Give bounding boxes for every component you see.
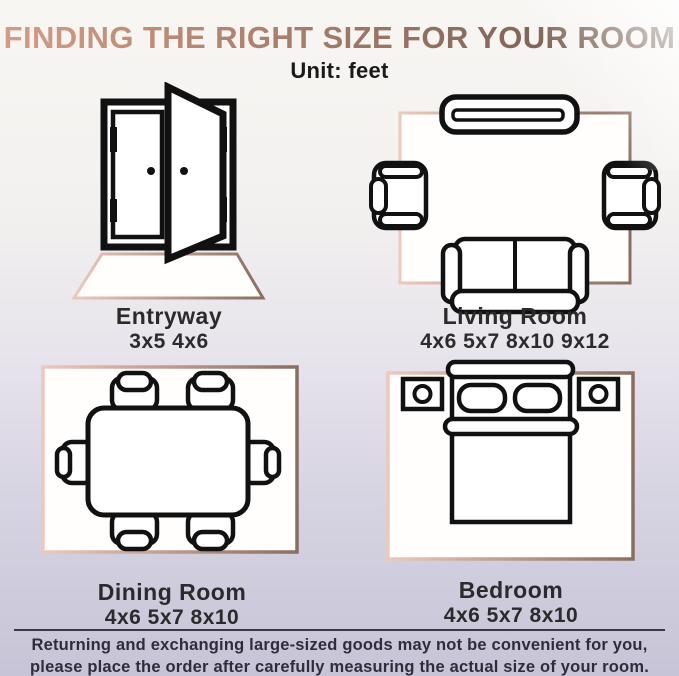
pillow-right [515,385,560,411]
entryway-label: Entryway [69,303,269,330]
disclaimer-line-1: Returning and exchanging large-sized goo… [0,636,679,655]
nightstand-right-icon [579,379,618,409]
nightstand-left-icon [403,379,442,409]
disclaimer-line-2: please place the order after carefully m… [0,658,679,676]
bedroom-sizes: 4x6 5x7 8x10 [385,604,637,628]
pillow-left [459,385,505,411]
armchair-right-icon [604,163,659,228]
tv-icon [442,97,577,132]
living-room-sizes: 4x6 5x7 8x10 9x12 [365,330,665,354]
dining-chair-top-right [188,373,233,410]
bed-icon [445,362,577,522]
page-title: FINDING THE RIGHT SIZE FOR YOUR ROOM [0,20,679,56]
headboard [448,362,573,377]
living-room-label: Living Room [365,303,665,330]
armchair-left-icon [371,163,426,228]
entryway-door-icon [69,82,269,307]
entryway-sizes: 3x5 4x6 [69,330,269,354]
sofa-icon [443,239,587,312]
dining-room-label: Dining Room [40,579,304,606]
unit-label: Unit: feet [0,58,679,84]
dining-table [88,408,248,515]
divider-line [14,629,665,631]
dining-room-layout-icon [40,362,304,558]
infographic-canvas: FINDING THE RIGHT SIZE FOR YOUR ROOM Uni… [0,0,679,676]
door-knob [147,167,155,175]
living-room-layout-icon [365,93,665,317]
dining-chair-top-left [112,373,157,410]
blanket-edge [445,419,577,434]
bedroom-layout-icon [385,359,637,561]
bedroom-label: Bedroom [385,577,637,604]
dining-room-sizes: 4x6 5x7 8x10 [40,606,304,630]
dining-chair-bottom-left [112,512,157,549]
door-knob [180,167,188,175]
open-door [168,87,227,259]
dining-chair-bottom-right [188,512,233,549]
